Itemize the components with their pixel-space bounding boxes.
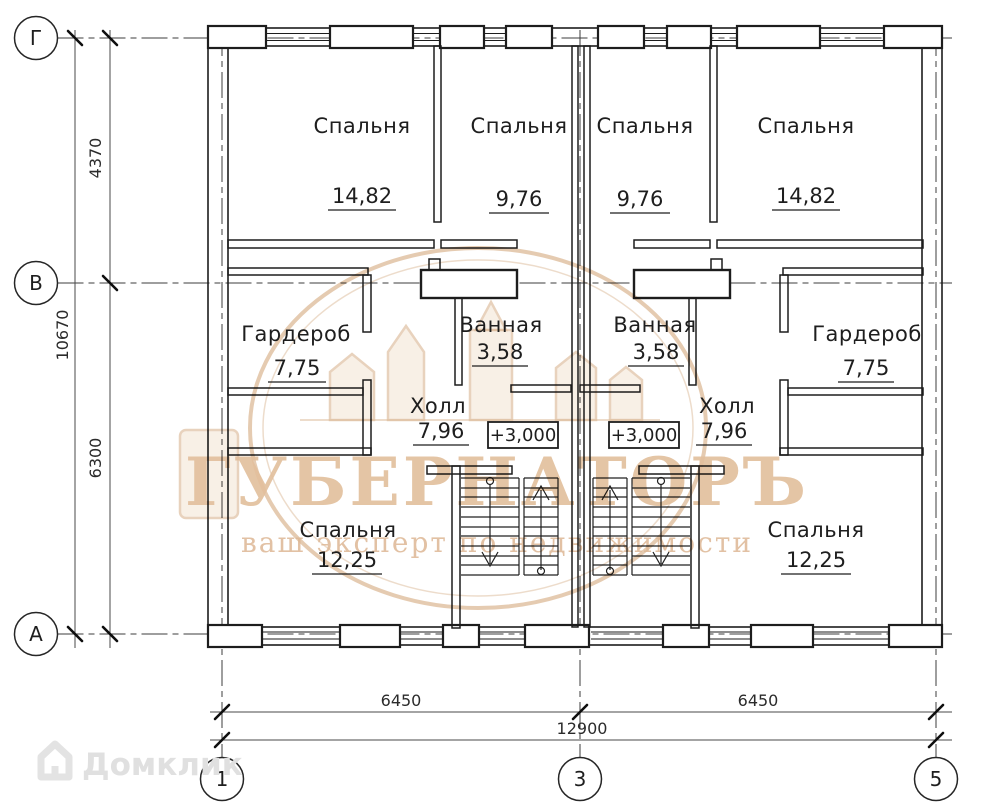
room-area-bedroom-2: 9,76 xyxy=(496,187,543,211)
dim-vertical-top: 4370 xyxy=(86,138,105,179)
dim-horizontal-right: 6450 xyxy=(738,691,779,710)
room-label-hall-right: Холл xyxy=(699,394,755,418)
domclick-logo-text: Домклик xyxy=(82,747,243,783)
room-label-bedroom-2: Спальня xyxy=(471,114,568,138)
room-label-wardrobe-right: Гардероб xyxy=(812,322,922,346)
room-label-bedroom-5: Спальня xyxy=(300,518,397,542)
partition-bedrooms-right xyxy=(710,46,717,222)
room-label-bedroom-4: Спальня xyxy=(758,114,855,138)
dimensions-left: 10670 4370 6300 xyxy=(53,30,117,648)
wall-piers-top xyxy=(208,26,942,48)
room-area-bedroom-4: 14,82 xyxy=(776,184,836,208)
room-area-hall-left: 7,96 xyxy=(418,419,465,443)
axis-label-v: В xyxy=(29,271,43,295)
domclick-logo: Домклик xyxy=(41,744,243,783)
bathroom-duct-right xyxy=(634,270,730,298)
room-area-bedroom-3: 9,76 xyxy=(617,187,664,211)
room-label-bath-right: Ванная xyxy=(613,313,696,337)
room-label-bedroom-3: Спальня xyxy=(597,114,694,138)
axis-label-5: 5 xyxy=(930,767,943,791)
partition-bedrooms-left xyxy=(434,46,441,222)
room-area-bath-left: 3,58 xyxy=(477,340,524,364)
dim-horizontal-total: 12900 xyxy=(557,719,608,738)
room-area-hall-right: 7,96 xyxy=(701,419,748,443)
domclick-house-icon xyxy=(41,744,69,777)
room-area-bedroom-5: 12,25 xyxy=(317,548,377,572)
bathroom-duct-left xyxy=(421,270,517,298)
room-label-bath-left: Ванная xyxy=(459,313,542,337)
wall-piers-bottom xyxy=(208,625,942,647)
room-label-bedroom-1: Спальня xyxy=(314,114,411,138)
room-area-bedroom-1: 14,82 xyxy=(332,184,392,208)
elevation-value-left: +3,000 xyxy=(490,425,557,446)
room-area-wardrobe-right: 7,75 xyxy=(843,356,890,380)
room-label-bedroom-6: Спальня xyxy=(768,518,865,542)
room-area-bedroom-6: 12,25 xyxy=(786,548,846,572)
room-label-wardrobe-left: Гардероб xyxy=(241,322,351,346)
room-area-bath-right: 3,58 xyxy=(633,340,680,364)
axis-label-3: 3 xyxy=(574,767,587,791)
elevation-value-right: +3,000 xyxy=(611,425,678,446)
dim-vertical-total: 10670 xyxy=(53,310,72,361)
dim-horizontal-left: 6450 xyxy=(381,691,422,710)
axis-label-g: Г xyxy=(30,26,42,50)
dim-vertical-bottom: 6300 xyxy=(86,438,105,479)
dimensions-bottom: 6450 6450 12900 xyxy=(210,691,952,747)
floor-plan-drawing: ГУБЕРНАТОРЪ ваш эксперт по недвижимости … xyxy=(0,0,983,803)
watermark-title: ГУБЕРНАТОРЪ xyxy=(185,443,809,521)
room-label-hall-left: Холл xyxy=(410,394,466,418)
axis-label-a: А xyxy=(29,622,43,646)
room-area-wardrobe-left: 7,75 xyxy=(274,356,321,380)
